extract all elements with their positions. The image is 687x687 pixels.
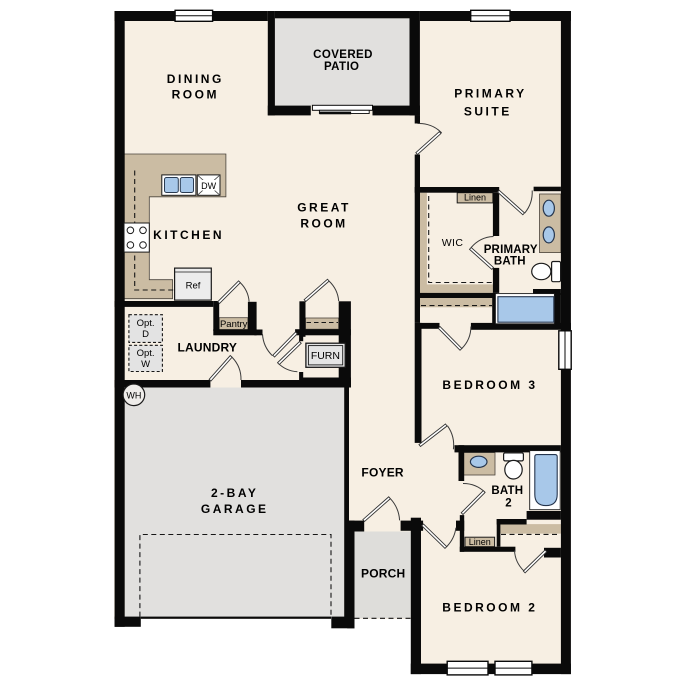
svg-text:GREAT: GREAT (297, 200, 351, 214)
svg-text:PORCH: PORCH (361, 566, 405, 580)
svg-text:BATH: BATH (494, 255, 526, 267)
svg-text:GARAGE: GARAGE (201, 502, 269, 516)
svg-text:PATIO: PATIO (324, 61, 359, 73)
svg-text:Pantry: Pantry (220, 319, 248, 330)
svg-text:ROOM: ROOM (172, 87, 219, 101)
svg-text:Opt.: Opt. (137, 318, 155, 329)
svg-text:2: 2 (505, 498, 512, 510)
svg-text:DW: DW (201, 181, 216, 191)
svg-text:PRIMARY: PRIMARY (484, 244, 538, 256)
svg-text:WIC: WIC (442, 237, 464, 249)
svg-text:SUITE: SUITE (464, 104, 512, 118)
svg-text:BEDROOM 3: BEDROOM 3 (442, 378, 537, 392)
svg-text:Linen: Linen (464, 193, 486, 203)
svg-text:COVERED: COVERED (313, 49, 373, 61)
svg-text:PRIMARY: PRIMARY (454, 87, 526, 101)
svg-text:FOYER: FOYER (361, 466, 403, 480)
svg-text:D: D (142, 329, 149, 340)
svg-text:BATH: BATH (491, 485, 523, 497)
svg-text:KITCHEN: KITCHEN (153, 228, 224, 242)
svg-text:W: W (141, 359, 150, 370)
svg-text:LAUNDRY: LAUNDRY (177, 341, 237, 355)
svg-text:2-BAY: 2-BAY (211, 486, 258, 500)
svg-text:DINING: DINING (167, 72, 224, 86)
svg-text:BEDROOM 2: BEDROOM 2 (442, 601, 537, 615)
svg-text:Ref: Ref (186, 281, 201, 292)
svg-text:FURN: FURN (311, 350, 340, 362)
svg-text:WH: WH (126, 390, 141, 400)
svg-text:Opt.: Opt. (137, 348, 155, 359)
svg-text:Linen: Linen (469, 537, 491, 547)
svg-text:ROOM: ROOM (300, 216, 347, 230)
